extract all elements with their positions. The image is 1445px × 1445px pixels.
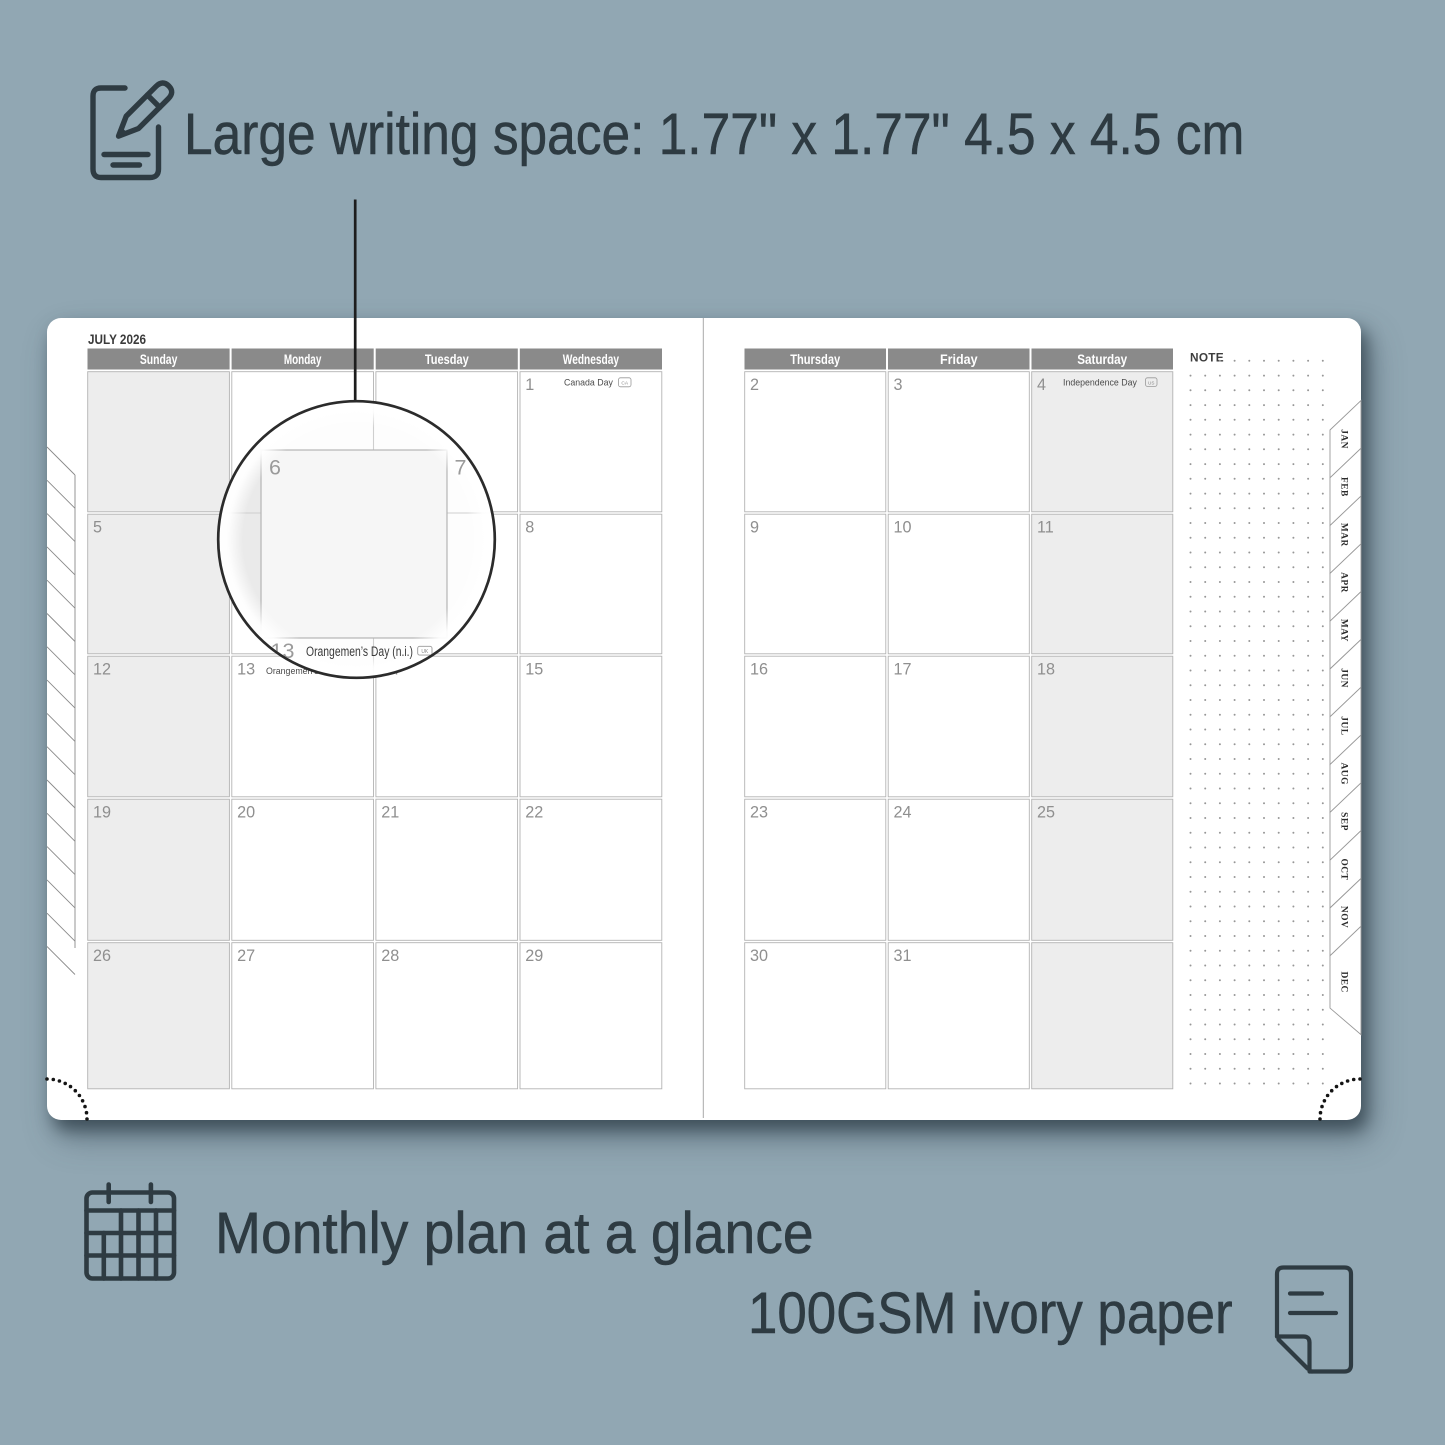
- svg-text:Canada Day: Canada Day: [564, 378, 614, 388]
- svg-text:Saturday: Saturday: [1077, 352, 1127, 367]
- svg-text:11: 11: [1037, 519, 1054, 537]
- svg-text:13: 13: [237, 661, 255, 679]
- svg-text:Friday: Friday: [940, 352, 978, 367]
- svg-text:JULY 2026: JULY 2026: [88, 332, 146, 347]
- svg-text:OCT: OCT: [1339, 858, 1349, 880]
- svg-text:SEP: SEP: [1339, 812, 1349, 831]
- svg-text:24: 24: [894, 804, 912, 822]
- svg-text:28: 28: [381, 947, 399, 965]
- svg-text:2: 2: [750, 376, 759, 394]
- svg-text:6: 6: [269, 456, 281, 480]
- svg-text:9: 9: [750, 519, 759, 537]
- svg-text:JUN: JUN: [1339, 668, 1349, 688]
- svg-text:7: 7: [455, 456, 467, 480]
- svg-text:Tuesday: Tuesday: [425, 352, 469, 367]
- svg-text:30: 30: [750, 947, 768, 965]
- svg-text:1: 1: [525, 376, 534, 394]
- svg-text:US: US: [1148, 380, 1154, 385]
- svg-text:3: 3: [894, 376, 903, 394]
- svg-text:20: 20: [237, 804, 255, 822]
- svg-text:12: 12: [93, 661, 111, 679]
- svg-text:FEB: FEB: [1339, 477, 1349, 497]
- svg-text:16: 16: [750, 661, 768, 679]
- svg-text:25: 25: [1037, 804, 1055, 822]
- svg-text:Wednesday: Wednesday: [563, 352, 620, 367]
- svg-text:Thursday: Thursday: [790, 352, 840, 367]
- svg-text:CA: CA: [621, 381, 628, 387]
- svg-text:26: 26: [93, 947, 111, 965]
- svg-text:UK: UK: [421, 649, 429, 655]
- svg-text:APR: APR: [1339, 572, 1349, 593]
- svg-text:18: 18: [1037, 661, 1055, 679]
- svg-text:22: 22: [525, 804, 543, 822]
- svg-text:17: 17: [894, 661, 912, 679]
- svg-text:Independence Day: Independence Day: [1063, 378, 1137, 388]
- svg-text:10: 10: [894, 519, 912, 537]
- svg-text:AUG: AUG: [1339, 763, 1349, 786]
- svg-text:23: 23: [750, 804, 768, 822]
- svg-text:NOTE: NOTE: [1190, 351, 1224, 365]
- svg-text:29: 29: [525, 947, 543, 965]
- svg-text:5: 5: [93, 519, 102, 537]
- svg-text:Monday: Monday: [284, 352, 322, 367]
- svg-text:4: 4: [1037, 376, 1046, 394]
- svg-text:Sunday: Sunday: [140, 352, 178, 367]
- svg-text:8: 8: [525, 519, 534, 537]
- svg-text:NOV: NOV: [1339, 906, 1349, 928]
- svg-text:Orangemen’s Day (n.i.): Orangemen’s Day (n.i.): [306, 644, 413, 659]
- svg-text:19: 19: [93, 804, 111, 822]
- svg-text:MAY: MAY: [1339, 619, 1349, 642]
- svg-text:JUL: JUL: [1339, 716, 1349, 735]
- svg-text:JAN: JAN: [1339, 429, 1349, 449]
- svg-text:DEC: DEC: [1339, 971, 1349, 992]
- svg-text:MAR: MAR: [1339, 523, 1349, 547]
- svg-text:27: 27: [237, 947, 255, 965]
- svg-text:21: 21: [381, 804, 399, 822]
- svg-text:31: 31: [894, 947, 912, 965]
- svg-text:15: 15: [525, 661, 543, 679]
